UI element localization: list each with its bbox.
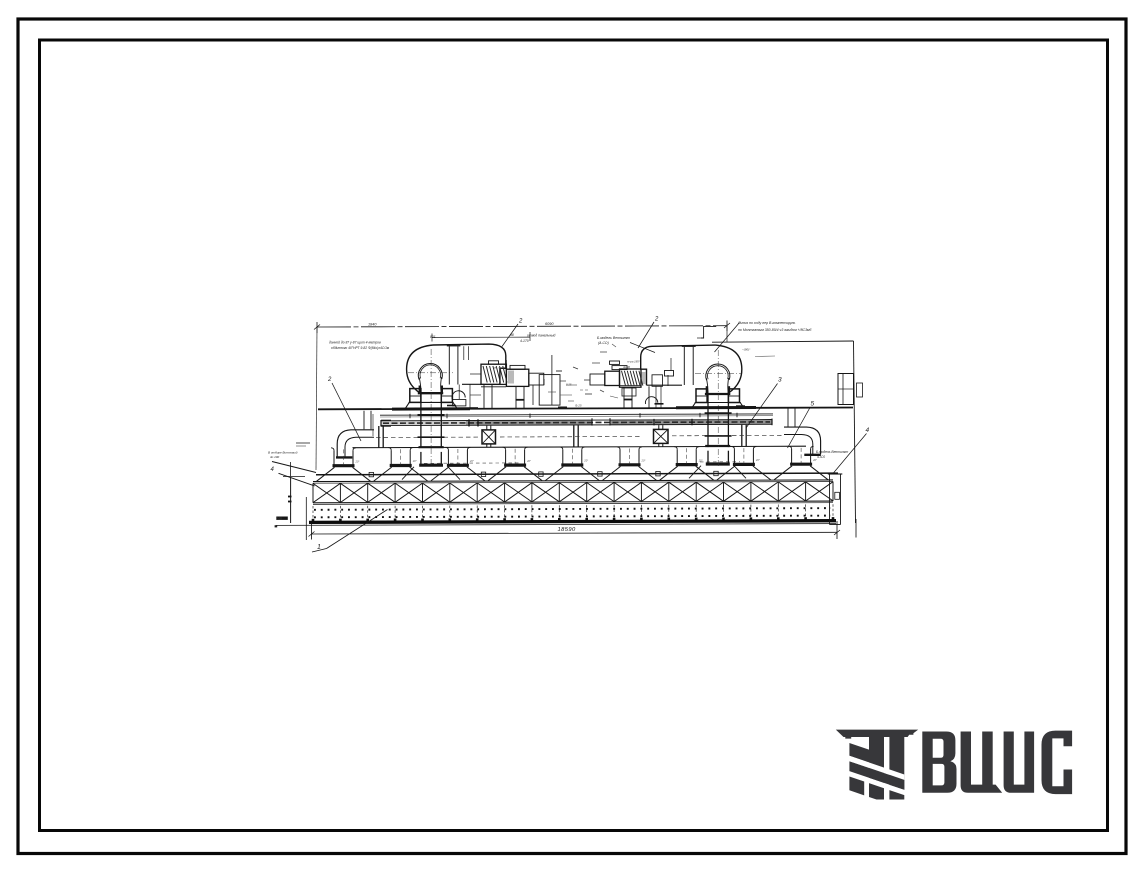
svg-text:4-IС0: 4-IС0 <box>817 455 825 459</box>
svg-text:1: 1 <box>317 544 321 551</box>
svg-text:Линия по ходу лер В-компенсиру: Линия по ходу лер В-компенсируль <box>737 321 796 325</box>
svg-text:801: 801 <box>430 335 436 339</box>
svg-text:4-170: 4-170 <box>520 339 529 343</box>
svg-text:20°: 20° <box>698 458 703 462</box>
svg-text:донной до 87 у-87 щит 4-метров: донной до 87 у-87 щит 4-метров <box>329 341 381 345</box>
svg-text:2: 2 <box>518 319 523 325</box>
svg-text:20°: 20° <box>355 459 360 463</box>
svg-text:т-ра 185°: т-ра 185° <box>627 360 641 364</box>
svg-text:20°: 20° <box>583 459 588 463</box>
svg-text:обдинного 40°НРТ 9-82 Ф(84о)x4: обдинного 40°НРТ 9-82 Ф(84о)x4С/1м <box>331 346 390 350</box>
svg-text:Ф.25: Ф.25 <box>575 404 582 408</box>
svg-text:20°: 20° <box>641 459 646 463</box>
svg-text:6090: 6090 <box>545 322 554 326</box>
svg-text:3: 3 <box>778 377 782 384</box>
svg-text:В отборе Винтовый: В отборе Винтовый <box>268 451 298 455</box>
svg-text:7.05: 7.05 <box>276 517 282 521</box>
svg-text:1840: 1840 <box>368 323 377 327</box>
svg-text:(А-СО): (А-СО) <box>598 341 609 345</box>
svg-text:18590: 18590 <box>558 527 576 533</box>
svg-text:по Монтажным 350-80/4 ч3 жгид: по Монтажным 350-80/4 ч3 жгидом +/8С3мб <box>738 328 812 332</box>
svg-text:4о 100: 4о 100 <box>270 455 280 459</box>
svg-text:Б-модель Вентилят: Б-модель Вентилят <box>816 450 848 454</box>
svg-text:98: 98 <box>510 333 514 337</box>
svg-text:20°: 20° <box>526 459 531 463</box>
svg-text:20°: 20° <box>412 459 417 463</box>
svg-text:20°: 20° <box>755 458 760 462</box>
svg-text:Б-модель Вентилят: Б-модель Вентилят <box>597 336 630 340</box>
svg-text:~(90)°: ~(90)° <box>742 348 751 352</box>
svg-text:2: 2 <box>654 317 659 323</box>
svg-text:0.25: 0.25 <box>566 383 572 387</box>
svg-text:4: 4 <box>866 427 870 434</box>
svg-text:отвод панельный: отвод панельный <box>527 334 556 338</box>
svg-text:5: 5 <box>811 401 815 408</box>
svg-text:ум. подш: ум. подш <box>493 366 506 370</box>
svg-text:4в-40: 4в-40 <box>623 365 631 369</box>
svg-text:2: 2 <box>327 377 332 383</box>
svg-text:20°: 20° <box>469 459 474 463</box>
